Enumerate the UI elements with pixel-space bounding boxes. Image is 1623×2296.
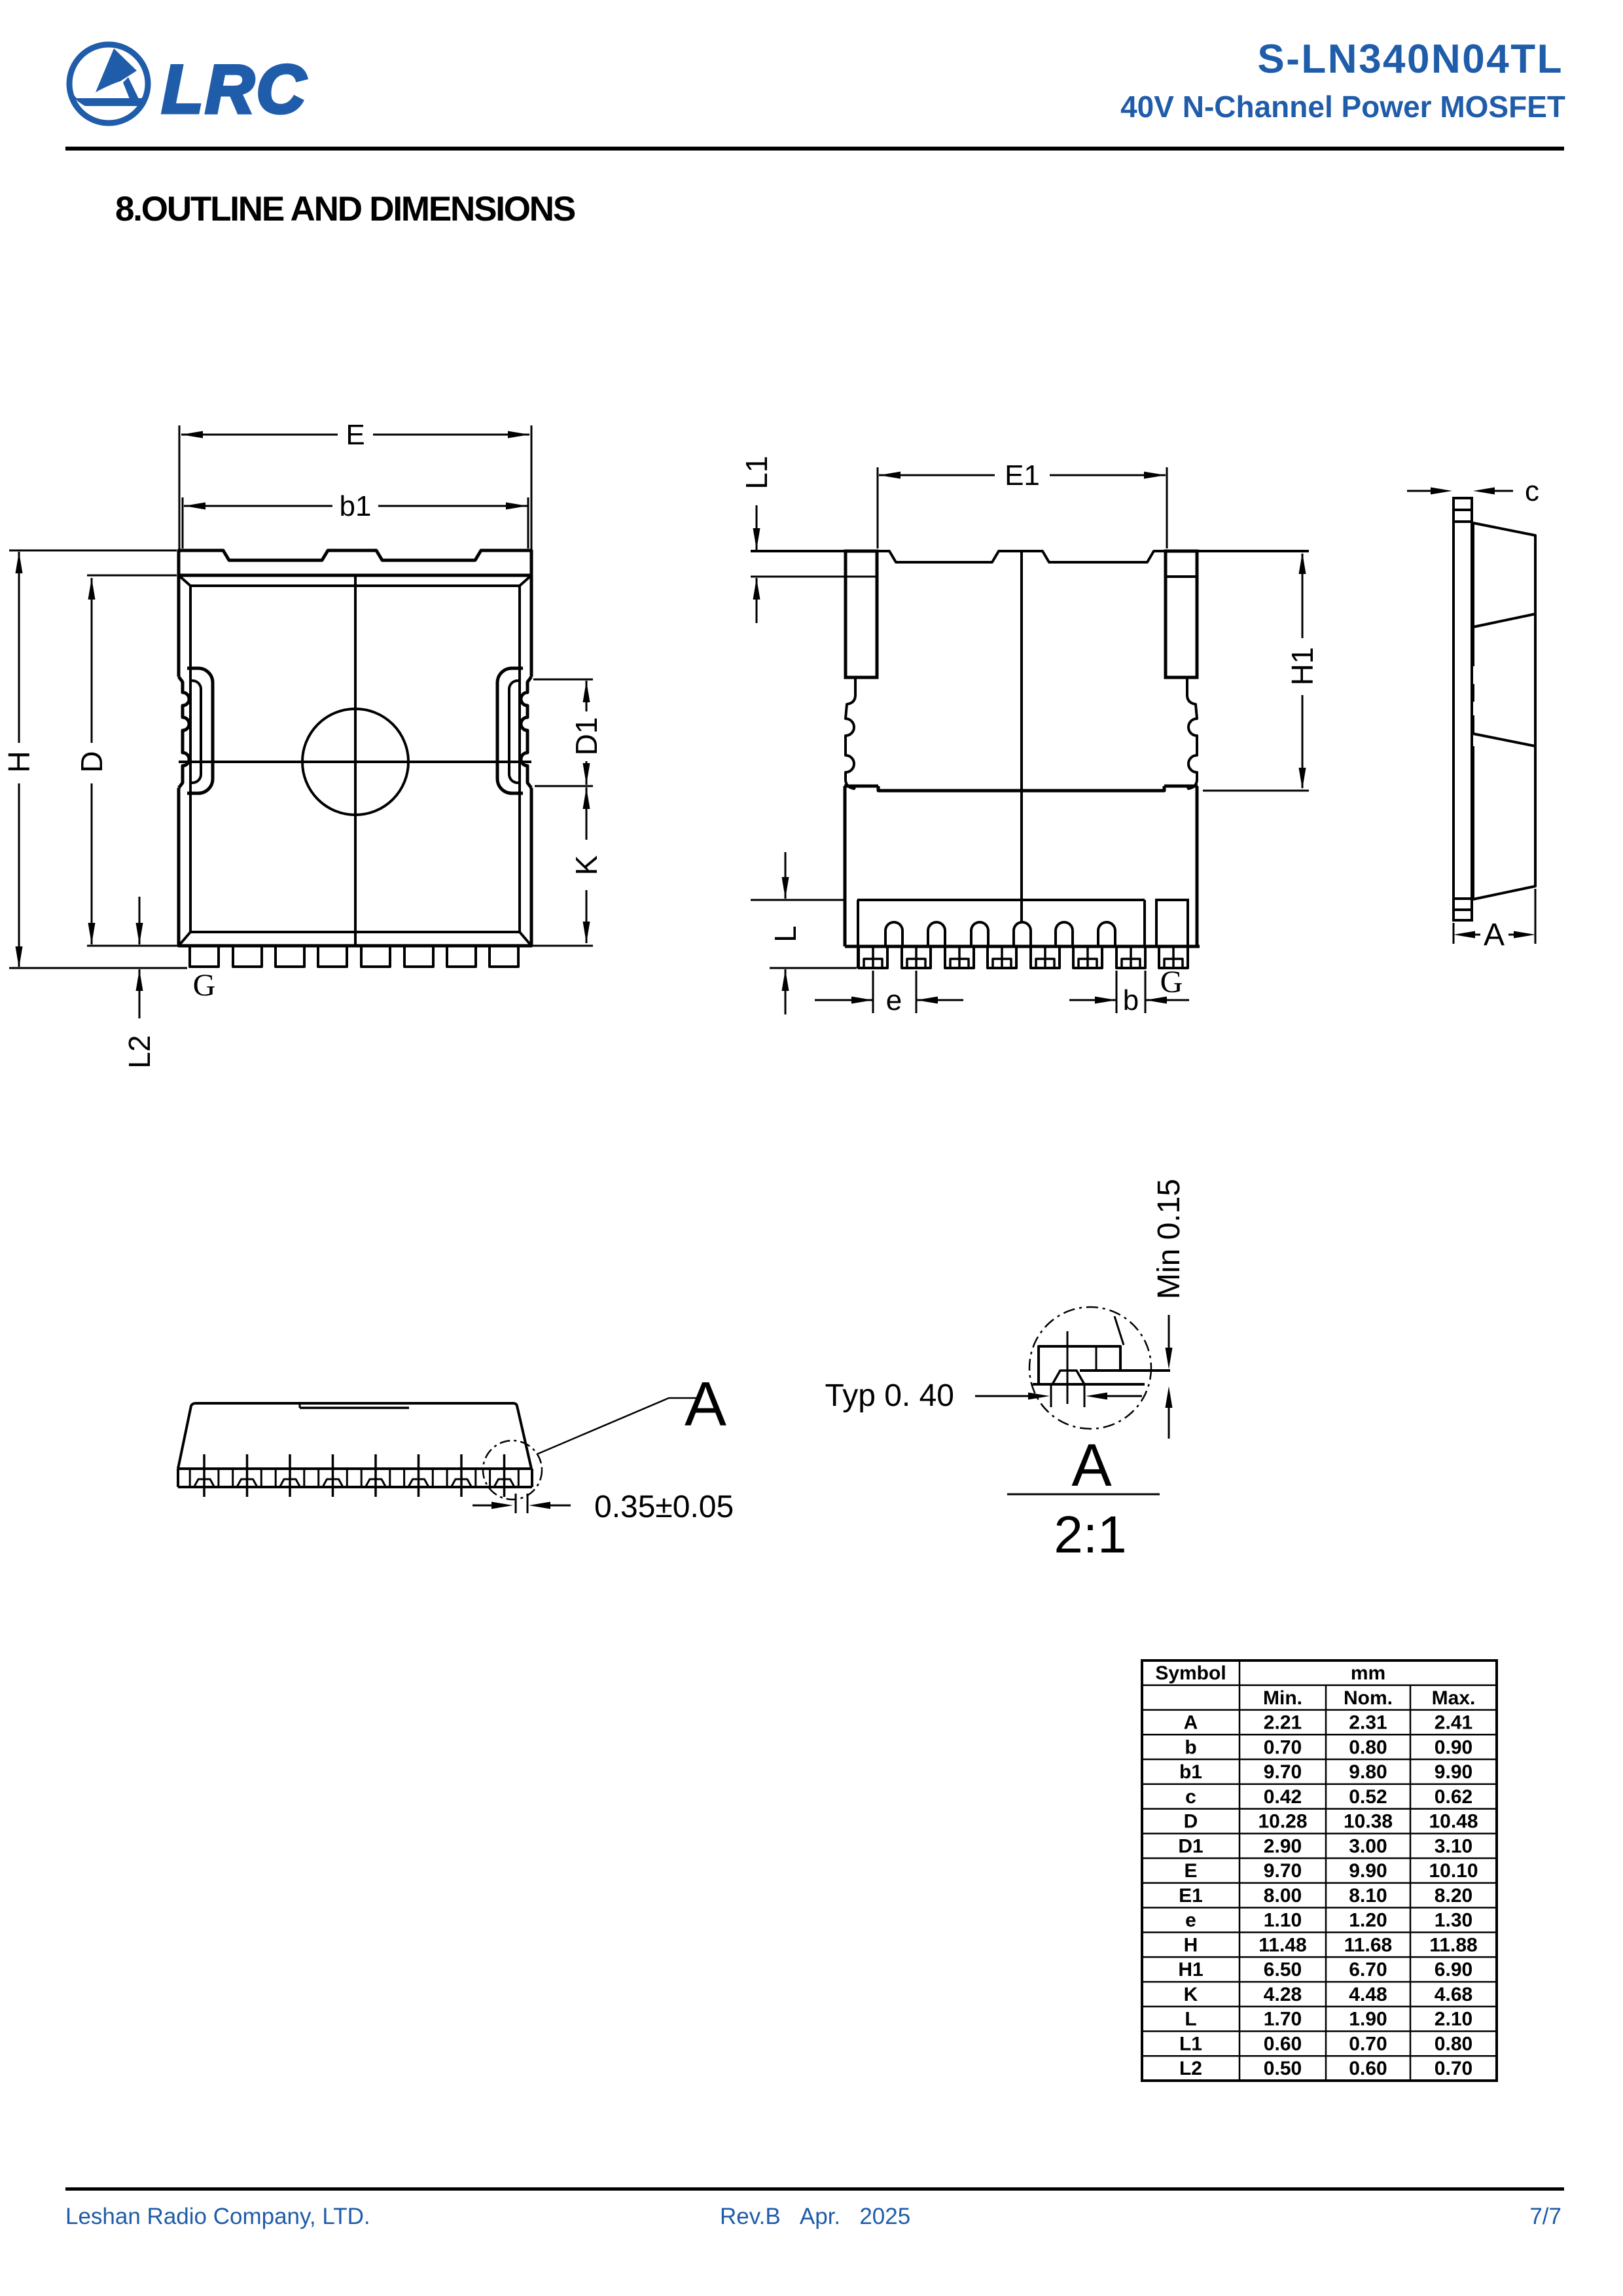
svg-text:L2: L2: [1179, 2058, 1202, 2079]
svg-text:0.90: 0.90: [1435, 1736, 1472, 1758]
svg-text:b1: b1: [340, 490, 372, 522]
svg-text:1.10: 1.10: [1264, 1910, 1302, 1931]
svg-text:2:1: 2:1: [1054, 1505, 1126, 1564]
svg-text:H1: H1: [1178, 1959, 1203, 1981]
svg-text:Nom.: Nom.: [1344, 1687, 1393, 1709]
svg-text:c: c: [1185, 1786, 1196, 1808]
svg-text:b: b: [1185, 1736, 1196, 1758]
svg-text:4.48: 4.48: [1349, 1984, 1387, 2005]
svg-text:1.20: 1.20: [1349, 1910, 1387, 1931]
svg-text:9.70: 9.70: [1264, 1761, 1302, 1783]
svg-text:11.68: 11.68: [1344, 1934, 1392, 1956]
svg-text:0.42: 0.42: [1264, 1786, 1302, 1808]
svg-text:G: G: [193, 968, 216, 1003]
svg-text:10.28: 10.28: [1258, 1811, 1307, 1833]
svg-text:L2: L2: [122, 1035, 156, 1068]
svg-text:0.35±0.05: 0.35±0.05: [594, 1490, 734, 1524]
svg-text:H1: H1: [1285, 647, 1319, 686]
svg-text:8.10: 8.10: [1349, 1885, 1387, 1907]
svg-text:1.30: 1.30: [1435, 1910, 1472, 1931]
svg-text:H: H: [1184, 1934, 1198, 1956]
svg-text:0.80: 0.80: [1435, 2033, 1472, 2054]
svg-text:Typ 0. 40: Typ 0. 40: [825, 1378, 954, 1413]
svg-text:Min 0.15: Min 0.15: [1152, 1179, 1186, 1299]
svg-text:1.90: 1.90: [1349, 2009, 1387, 2030]
svg-text:9.80: 9.80: [1349, 1761, 1387, 1783]
svg-text:2.10: 2.10: [1435, 2009, 1472, 2030]
svg-text:0.60: 0.60: [1264, 2033, 1302, 2054]
svg-text:3.00: 3.00: [1349, 1835, 1387, 1857]
svg-text:S-LN340N04TL: S-LN340N04TL: [1257, 37, 1563, 82]
svg-text:Min.: Min.: [1263, 1687, 1302, 1709]
svg-text:A: A: [1184, 1712, 1198, 1734]
svg-text:3.10: 3.10: [1435, 1835, 1472, 1857]
svg-text:D: D: [1184, 1811, 1198, 1833]
svg-text:E1: E1: [1179, 1885, 1203, 1907]
svg-text:1.70: 1.70: [1264, 2009, 1302, 2030]
svg-text:6.90: 6.90: [1435, 1959, 1472, 1981]
svg-text:mm: mm: [1351, 1662, 1385, 1684]
svg-text:9.70: 9.70: [1264, 1860, 1302, 1882]
svg-text:E: E: [1184, 1860, 1197, 1882]
svg-text:0.50: 0.50: [1264, 2058, 1302, 2079]
svg-text:Symbol: Symbol: [1155, 1662, 1226, 1684]
svg-text:8.00: 8.00: [1264, 1885, 1302, 1907]
svg-text:10.48: 10.48: [1429, 1811, 1478, 1833]
svg-text:2.41: 2.41: [1435, 1712, 1472, 1734]
svg-text:b: b: [1123, 984, 1139, 1016]
svg-text:G: G: [1160, 965, 1183, 999]
svg-text:0.70: 0.70: [1349, 2033, 1387, 2054]
svg-text:2.31: 2.31: [1349, 1712, 1387, 1734]
svg-text:8.20: 8.20: [1435, 1885, 1472, 1907]
svg-text:E: E: [346, 419, 365, 451]
svg-text:e: e: [886, 984, 902, 1016]
svg-text:8.OUTLINE AND DIMENSIONS: 8.OUTLINE AND DIMENSIONS: [115, 190, 575, 228]
svg-text:D1: D1: [569, 717, 603, 756]
svg-text:Leshan Radio Company, LTD.: Leshan Radio Company, LTD.: [65, 2204, 370, 2229]
svg-text:0.52: 0.52: [1349, 1786, 1387, 1808]
svg-text:11.88: 11.88: [1429, 1934, 1477, 1956]
svg-text:11.48: 11.48: [1258, 1934, 1306, 1956]
svg-text:b1: b1: [1179, 1761, 1202, 1783]
svg-text:2.21: 2.21: [1264, 1712, 1302, 1734]
svg-text:L1: L1: [740, 456, 774, 489]
svg-text:40V N-Channel Power MOSFET: 40V N-Channel Power MOSFET: [1120, 90, 1565, 124]
svg-text:L1: L1: [1179, 2033, 1202, 2054]
svg-text:4.28: 4.28: [1264, 1984, 1302, 2005]
svg-text:0.70: 0.70: [1264, 1736, 1302, 1758]
svg-text:10.38: 10.38: [1344, 1811, 1393, 1833]
svg-text:2.90: 2.90: [1264, 1835, 1302, 1857]
svg-text:A: A: [1484, 918, 1505, 952]
svg-text:K: K: [1184, 1984, 1198, 2005]
svg-text:E1: E1: [1005, 459, 1040, 492]
svg-text:e: e: [1185, 1910, 1196, 1931]
svg-text:D1: D1: [1178, 1835, 1203, 1857]
svg-text:0.70: 0.70: [1435, 2058, 1472, 2079]
svg-text:L: L: [1185, 2009, 1196, 2030]
svg-text:Max.: Max.: [1432, 1687, 1476, 1709]
svg-text:A: A: [685, 1369, 726, 1439]
svg-text:L: L: [768, 925, 802, 942]
svg-text:H: H: [2, 751, 36, 772]
svg-text:Rev.B Apr. 2025: Rev.B Apr. 2025: [720, 2204, 910, 2229]
svg-text:LRC: LRC: [162, 52, 308, 128]
svg-text:c: c: [1525, 475, 1539, 507]
svg-text:9.90: 9.90: [1435, 1761, 1472, 1783]
svg-text:D: D: [75, 751, 109, 772]
svg-text:7/7: 7/7: [1529, 2204, 1561, 2229]
svg-text:9.90: 9.90: [1349, 1860, 1387, 1882]
svg-text:A: A: [1071, 1432, 1112, 1499]
svg-text:K: K: [569, 855, 603, 875]
svg-text:6.50: 6.50: [1264, 1959, 1302, 1981]
svg-text:0.80: 0.80: [1349, 1736, 1387, 1758]
svg-text:6.70: 6.70: [1349, 1959, 1387, 1981]
svg-text:10.10: 10.10: [1429, 1860, 1478, 1882]
svg-text:4.68: 4.68: [1435, 1984, 1472, 2005]
svg-text:0.60: 0.60: [1349, 2058, 1387, 2079]
svg-text:0.62: 0.62: [1435, 1786, 1472, 1808]
